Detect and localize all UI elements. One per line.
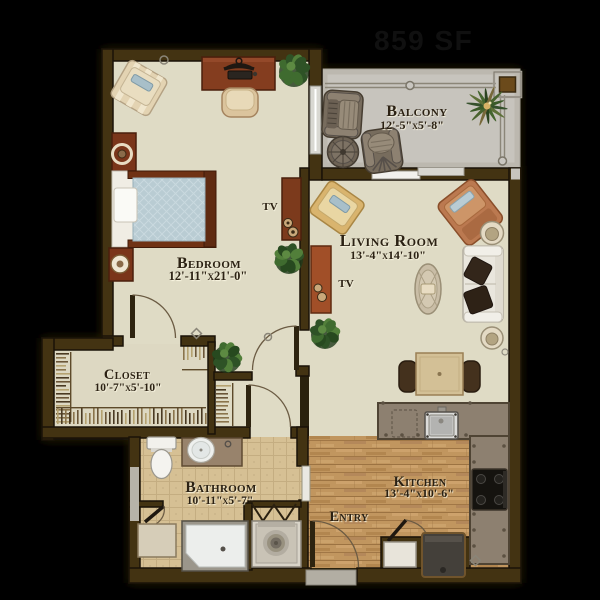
svg-text:12'-5"x5'-8": 12'-5"x5'-8" — [380, 118, 444, 132]
svg-text:13'-4"x10'-6": 13'-4"x10'-6" — [384, 486, 454, 500]
svg-text:10'-7"x5'-10": 10'-7"x5'-10" — [94, 382, 161, 394]
svg-text:10'-11"x5'-7": 10'-11"x5'-7" — [187, 495, 253, 507]
svg-text:Closet: Closet — [104, 367, 150, 383]
svg-text:Bathroom: Bathroom — [185, 479, 257, 496]
svg-text:859 SF: 859 SF — [374, 25, 473, 56]
svg-text:13'-4"x14'-10": 13'-4"x14'-10" — [350, 248, 426, 262]
svg-text:Entry: Entry — [329, 509, 369, 525]
svg-text:12'-11"x21'-0": 12'-11"x21'-0" — [169, 269, 248, 283]
svg-text:TV: TV — [262, 201, 277, 213]
svg-text:TV: TV — [338, 278, 353, 290]
